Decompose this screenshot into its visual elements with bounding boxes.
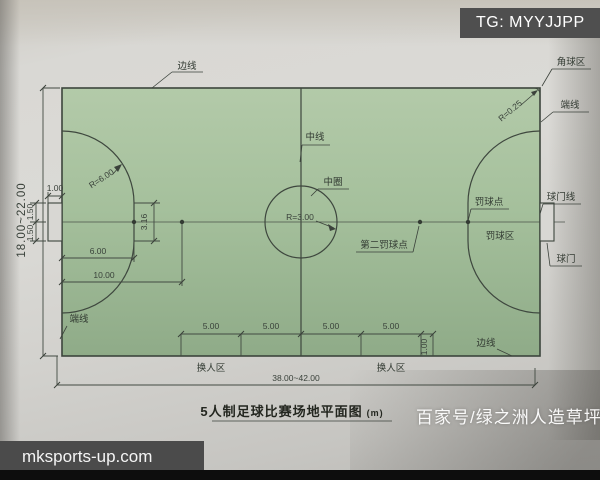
label-sideline-top: 边线: [177, 60, 197, 72]
drawing-title-text: 5人制足球比赛场地平面图: [200, 404, 362, 419]
label-penalty-point: 罚球点: [475, 196, 504, 208]
label-substitution-zone-left: 换人区: [197, 362, 226, 374]
dim-sub-seg1: 5.00: [203, 321, 220, 331]
drawing-title: 5人制足球比赛场地平面图(m): [200, 404, 383, 419]
left-penalty-mark: [132, 220, 136, 224]
left-goal: [48, 203, 62, 241]
label-endline-right: 端线: [560, 99, 580, 111]
dim-goal-half-lower: 1.50: [25, 224, 35, 241]
photo-bottom-black-bar: [0, 470, 600, 480]
dim-sub-offset: 1.00: [419, 338, 429, 355]
label-center-line: 中线: [305, 131, 325, 143]
dim-center-circle-radius: R=3.00: [286, 212, 314, 222]
label-goal: 球门: [556, 253, 575, 265]
left-second-penalty-mark: [180, 220, 184, 224]
label-penalty-area: 罚球区: [486, 230, 515, 242]
dim-sub-seg4: 5.00: [383, 321, 400, 331]
photo-of-field-plan: 边线 角球区 R=0.25 端线 中线 中圈 R=3.00 第二罚球点 罚球点 …: [0, 0, 600, 480]
label-substitution-zone-right: 换人区: [377, 362, 406, 374]
watermark-telegram-box: TG: MYYJJPP: [460, 8, 600, 38]
right-goal: [540, 203, 554, 241]
dim-sub-seg3: 5.00: [323, 321, 340, 331]
label-endline-left: 端线: [69, 313, 89, 325]
label-goal-line: 球门线: [547, 191, 576, 203]
label-center-circle: 中圈: [323, 176, 342, 188]
drawing-title-unit: (m): [367, 408, 384, 418]
label-second-penalty-point: 第二罚球点: [360, 239, 408, 251]
watermark-telegram-text: TG: MYYJJPP: [476, 14, 585, 32]
dim-sub-seg2: 5.00: [263, 321, 280, 331]
watermark-source-text: 百家号/绿之洲人造草坪: [416, 403, 600, 428]
watermark-site-text: mksports-up.com: [22, 447, 152, 467]
dim-arc-flat-length: 3.16: [139, 213, 149, 230]
label-corner-area: 角球区: [557, 56, 586, 68]
label-sideline-bottom: 边线: [476, 337, 496, 349]
dim-goal-depth: 1.00: [47, 183, 64, 193]
watermark-site-box: mksports-up.com: [0, 441, 204, 472]
dim-goal-half-upper: 1.50: [25, 203, 35, 220]
dim-second-penalty-mark-distance: 10.00: [93, 270, 115, 280]
dim-penalty-mark-distance: 6.00: [90, 246, 107, 256]
right-second-penalty-mark: [418, 220, 422, 224]
dim-field-length-range: 38.00~42.00: [272, 373, 320, 383]
